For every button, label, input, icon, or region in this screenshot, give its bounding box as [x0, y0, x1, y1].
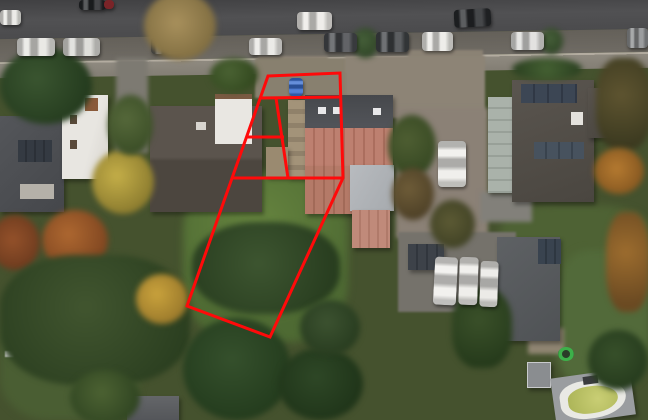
parked-suv-gray [324, 33, 357, 52]
parked-car-white [17, 38, 55, 56]
tree-canopy [108, 95, 153, 155]
aerial-photo-scene [0, 0, 648, 420]
parked-car-white [422, 32, 453, 51]
moving-car-red [104, 0, 114, 9]
brown-tree-canopy [392, 168, 434, 220]
parked-car-silver [511, 32, 544, 50]
conifer-cluster [278, 348, 363, 420]
roof-skylight [373, 108, 381, 115]
conifer-cluster [183, 318, 291, 420]
left-house-solar-panels [18, 140, 52, 162]
parked-car-silver [63, 38, 100, 56]
terracotta-house-lower-roof [305, 128, 393, 168]
light-gray-roof-section [350, 165, 394, 211]
white-van-rear-parking [458, 257, 479, 306]
flat-roof-solar-panels [538, 239, 561, 264]
center-house-skylight [196, 122, 206, 130]
parked-suv-gray [376, 32, 409, 52]
right-house-skylights [534, 142, 584, 159]
parked-car-gray-partial [627, 28, 648, 48]
terracotta-wing-roof [305, 166, 353, 214]
moving-car-dark [79, 0, 106, 10]
white-van-rear-parking [479, 261, 499, 308]
white-van-rear-parking [433, 256, 458, 305]
parked-car-white [249, 38, 282, 55]
plot-small-shed [266, 147, 288, 177]
orange-autumn-tree [594, 148, 644, 194]
center-house-gable [215, 94, 252, 144]
hedge [512, 58, 582, 80]
blue-car-in-plot-driveway [289, 78, 303, 96]
white-house-window [70, 140, 77, 149]
tree-canopy [300, 300, 360, 355]
moving-suv-black [454, 8, 492, 28]
tree-canopy [0, 48, 92, 124]
roof-skylight [333, 107, 341, 114]
yellow-autumn-tree [92, 150, 154, 214]
red-autumn-tree [0, 215, 40, 270]
autumn-tree-cluster [606, 212, 648, 312]
left-house-terrace [20, 184, 54, 199]
tree-cluster [596, 58, 648, 150]
right-house-solar-panels [521, 84, 577, 103]
tree-canopy [430, 200, 475, 248]
tree-cluster [588, 330, 648, 390]
right-house-chimney [571, 112, 583, 125]
trampoline [558, 347, 574, 361]
pink-shed-roof [352, 210, 390, 248]
gold-autumn-tree [136, 274, 188, 324]
hedge [210, 58, 258, 92]
large-tree-canopy-over-lawn [192, 222, 340, 314]
roof-skylight [318, 107, 326, 114]
parked-car-white [0, 10, 21, 25]
parked-van-white [297, 12, 332, 30]
garden-shed [527, 362, 551, 388]
tree-cluster [70, 370, 140, 420]
white-van-right-driveway [438, 141, 466, 187]
